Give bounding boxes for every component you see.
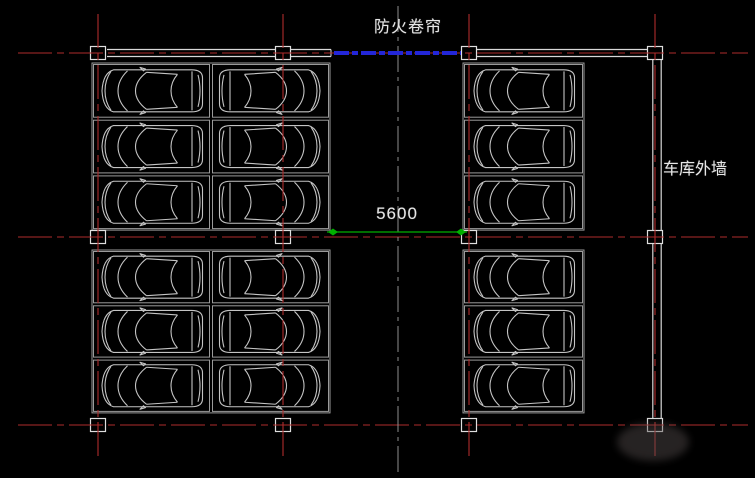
car: [102, 179, 203, 226]
parking-block-outline-upper-left: [92, 63, 330, 230]
parking-block-outline-lower-left: [92, 250, 330, 413]
car: [474, 123, 575, 170]
parking-block-outline-upper-right: [463, 63, 584, 230]
car: [474, 362, 575, 409]
fire-shutter-label: 防火卷帘: [374, 13, 442, 37]
layer-axes: [18, 14, 748, 460]
car: [474, 67, 575, 114]
car: [102, 308, 203, 355]
car: [102, 254, 203, 301]
watermark-blob: [617, 423, 689, 461]
layer-markers: [91, 47, 663, 432]
garage-floor-plan-drawing: [0, 0, 755, 478]
car: [474, 308, 575, 355]
parking-block-outline-lower-right: [463, 250, 584, 413]
car: [474, 254, 575, 301]
cad-canvas: 防火卷帘 5600 车库外墙: [0, 0, 755, 478]
layer-walls: [107, 50, 661, 424]
layer-cars: [102, 67, 575, 409]
car: [220, 362, 321, 409]
garage-outer-wall-label: 车库外墙: [663, 155, 727, 179]
car: [220, 67, 321, 114]
dimension-value-label: 5600: [333, 204, 461, 224]
car: [220, 254, 321, 301]
car: [220, 179, 321, 226]
car: [102, 123, 203, 170]
layer-stalls: [92, 63, 584, 413]
car: [220, 123, 321, 170]
car: [102, 67, 203, 114]
car: [220, 308, 321, 355]
car: [102, 362, 203, 409]
car: [474, 179, 575, 226]
